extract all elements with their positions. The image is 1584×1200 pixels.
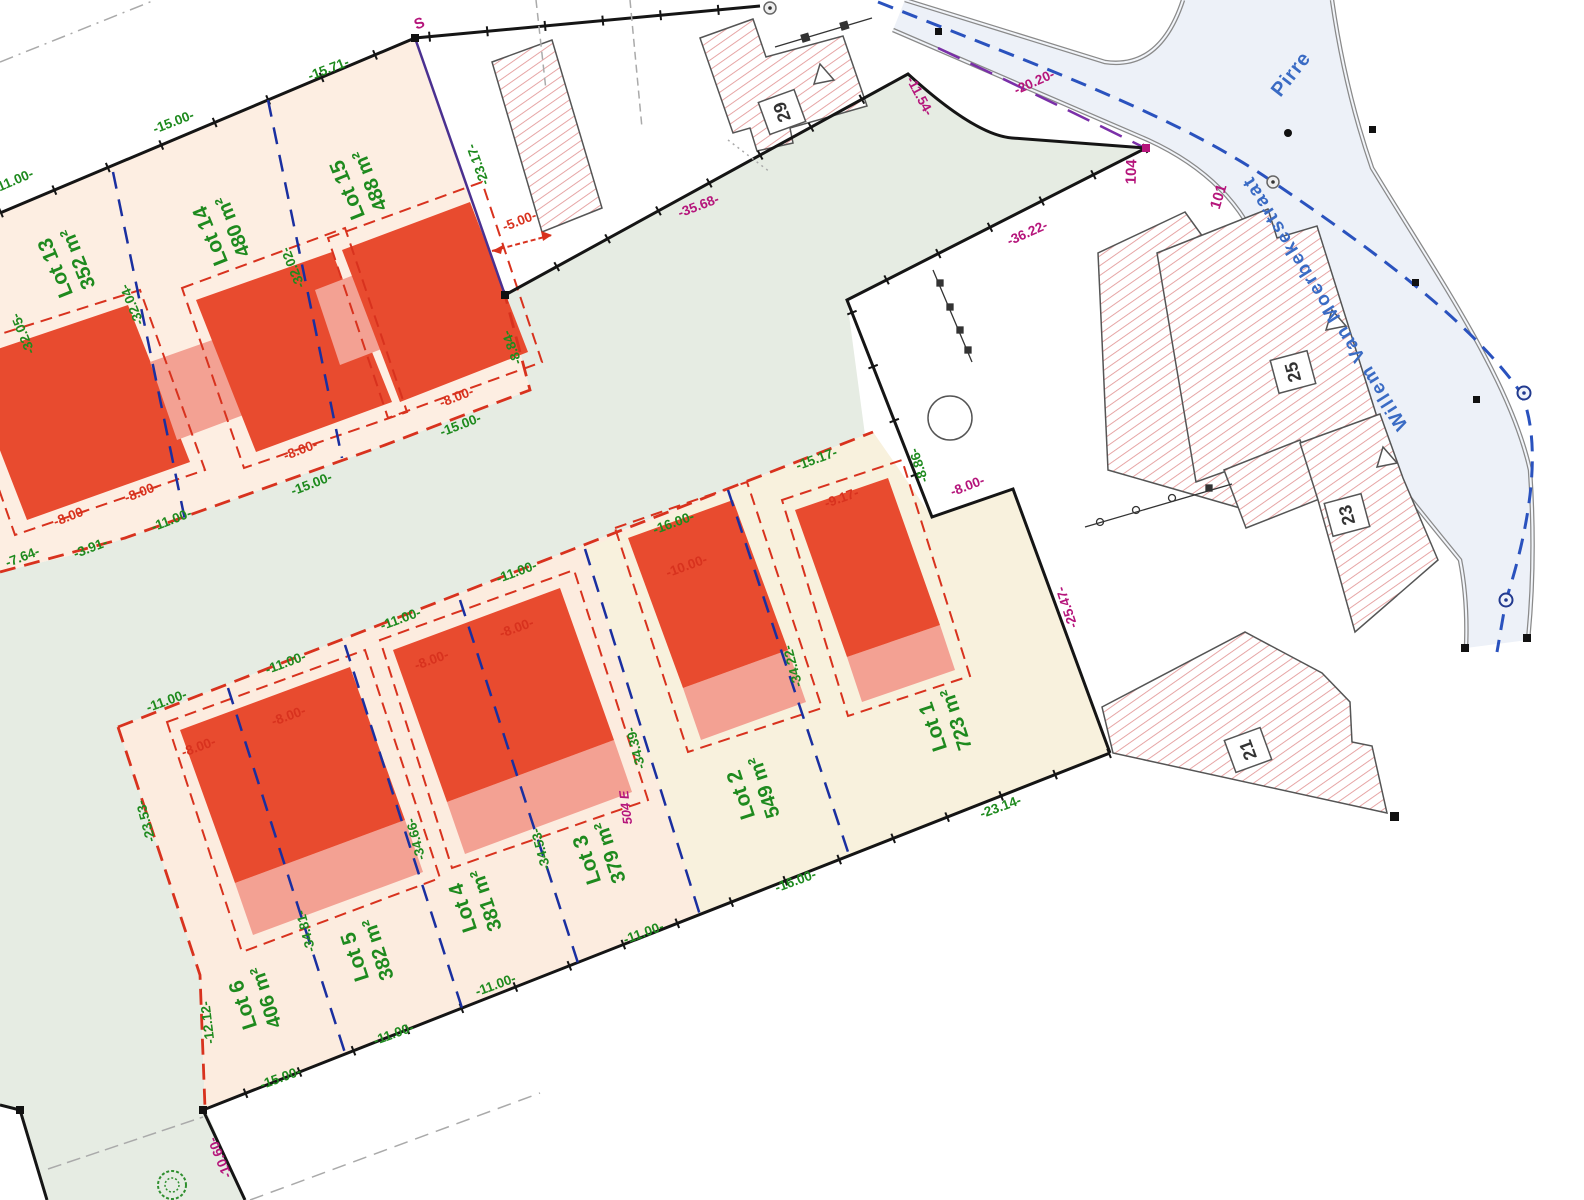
arrowhead-right (541, 231, 552, 241)
road-edge-dot (1284, 129, 1292, 137)
old-boundary-topleft (0, 0, 155, 62)
existing-building-topleft (492, 40, 602, 232)
dim: -8.86- (906, 446, 931, 484)
ref-104: 104 (1123, 158, 1141, 184)
dim: -36.22- (1005, 217, 1050, 248)
ref-101: 101 (1207, 182, 1231, 211)
point-104-marker (1142, 144, 1150, 152)
well-circle (928, 396, 972, 440)
arrowhead-left (492, 245, 503, 254)
old-boundary-bottom (250, 1093, 540, 1200)
site-plan-page: 29 25 23 21 Lot 13 352 m² Lot 14 480 m² … (0, 0, 1584, 1200)
dim: -5.00- (500, 207, 538, 234)
existing-building-21 (1102, 632, 1387, 813)
site-plan-svg: 29 25 23 21 Lot 13 352 m² Lot 14 480 m² … (0, 0, 1584, 1200)
ref-s: S (412, 14, 427, 33)
dim: -23.17- (463, 142, 492, 187)
old-parcel-line-2 (630, 0, 642, 128)
dim: -8.00- (948, 472, 986, 499)
dim: -11.00- (0, 166, 36, 196)
red-arrow-dimension (492, 231, 552, 254)
